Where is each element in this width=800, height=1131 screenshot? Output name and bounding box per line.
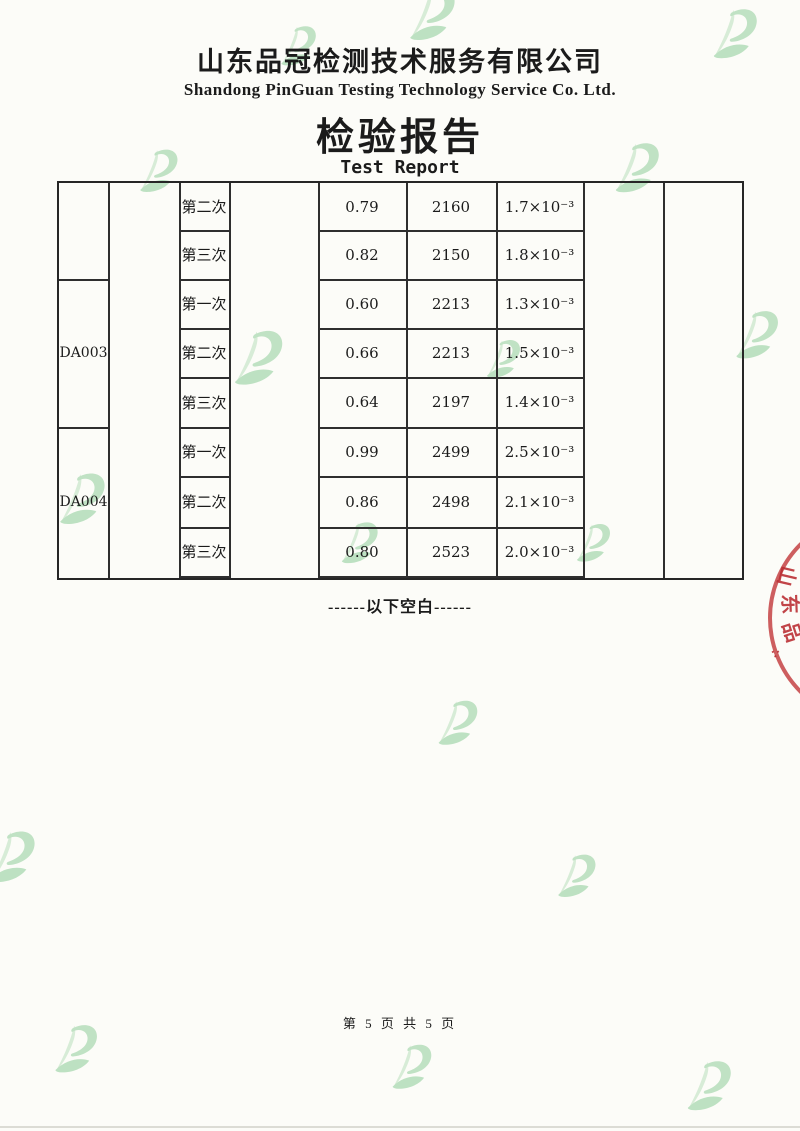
value-cell: 2523 — [406, 527, 496, 576]
trial-cell: 第三次 — [179, 230, 229, 279]
stamp-char: 东 — [779, 594, 800, 615]
value-cell: 0.64 — [318, 377, 406, 427]
value-cell: 1.4×10⁻³ — [496, 377, 583, 427]
report-title-cn: 检验报告 — [0, 106, 800, 161]
grid-vline — [229, 183, 231, 578]
value-cell: 1.3×10⁻³ — [496, 279, 583, 328]
value-cell: 2197 — [406, 377, 496, 427]
value-cell: 2160 — [406, 183, 496, 230]
value-cell: 1.5×10⁻³ — [496, 328, 583, 377]
value-cell: 2499 — [406, 427, 496, 476]
pinguan-logo-watermark — [548, 850, 600, 902]
value-cell: 0.86 — [318, 476, 406, 527]
trial-cell: 第三次 — [179, 527, 229, 576]
pinguan-logo-watermark — [428, 696, 482, 750]
value-cell: 2.1×10⁻³ — [496, 476, 583, 527]
value-cell: 0.79 — [318, 183, 406, 230]
trial-cell: 第一次 — [179, 427, 229, 476]
value-cell: 2150 — [406, 230, 496, 279]
company-name-en: Shandong PinGuan Testing Technology Serv… — [0, 80, 800, 100]
value-cell: 1.7×10⁻³ — [496, 183, 583, 230]
grid-hline — [179, 576, 231, 578]
trial-cell: 第二次 — [179, 476, 229, 527]
stamp-char: 山 — [774, 564, 798, 588]
value-cell: 2.5×10⁻³ — [496, 427, 583, 476]
value-cell: 0.82 — [318, 230, 406, 279]
value-cell: 2.0×10⁻³ — [496, 527, 583, 576]
report-page: 山东品冠检测技术服务有限公司 Shandong PinGuan Testing … — [0, 0, 800, 1131]
trial-cell: 第二次 — [179, 328, 229, 377]
trial-cell: 第三次 — [179, 377, 229, 427]
value-cell: 0.99 — [318, 427, 406, 476]
report-title-en: Test Report — [0, 157, 800, 178]
sample-id-cell: DA003 — [59, 279, 108, 427]
value-cell: 0.66 — [318, 328, 406, 377]
value-cell: 0.80 — [318, 527, 406, 576]
scan-edge-line — [0, 1126, 800, 1128]
trial-cell: 第一次 — [179, 279, 229, 328]
grid-vline — [583, 183, 585, 578]
grid-vline — [108, 183, 110, 578]
grid-vline — [663, 183, 665, 578]
grid-hline — [59, 279, 110, 281]
company-name-cn: 山东品冠检测技术服务有限公司 — [0, 40, 800, 79]
pinguan-logo-watermark — [676, 1056, 736, 1116]
value-cell: 2498 — [406, 476, 496, 527]
value-cell: 0.60 — [318, 279, 406, 328]
grid-hline — [318, 576, 585, 578]
sample-id-cell: DA004 — [59, 427, 108, 576]
page-number: 第 5 页 共 5 页 — [0, 1013, 800, 1032]
grid-hline — [59, 427, 110, 429]
value-cell: 1.8×10⁻³ — [496, 230, 583, 279]
value-cell: 2213 — [406, 328, 496, 377]
pinguan-logo-watermark — [0, 826, 40, 888]
value-cell: 2213 — [406, 279, 496, 328]
trial-cell: 第二次 — [179, 183, 229, 230]
results-table: DA003 DA004 第二次0.7921601.7×10⁻³第三次0.8221… — [57, 181, 744, 580]
pinguan-logo-watermark — [382, 1040, 436, 1094]
end-of-data-note: ------以下空白------ — [0, 593, 800, 617]
